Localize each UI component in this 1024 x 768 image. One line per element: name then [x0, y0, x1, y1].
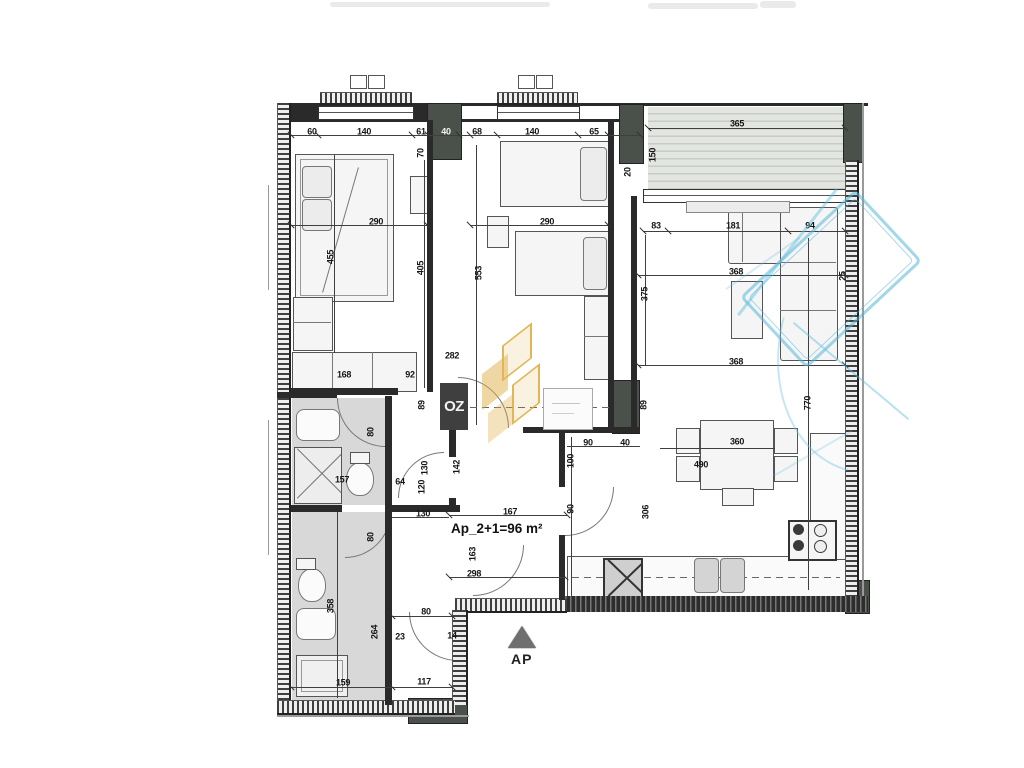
- dim-label: 368: [729, 268, 743, 277]
- dim-label: 65: [589, 128, 598, 137]
- dim-label: 40: [441, 128, 450, 137]
- wall: [449, 498, 456, 512]
- dim-label: 168: [337, 371, 351, 380]
- chair: [774, 456, 798, 482]
- wall-hatch: [320, 92, 412, 105]
- wall: [427, 120, 433, 392]
- dim-label: 770: [804, 396, 813, 410]
- wall: [412, 103, 428, 122]
- wall-hatched: [455, 598, 567, 613]
- dim-label: 90: [583, 439, 592, 448]
- wall-hatched-right: [845, 160, 859, 596]
- wall: [643, 103, 868, 106]
- scan-artifact: [760, 1, 796, 8]
- entrance-label: AP: [511, 651, 532, 667]
- pillow: [580, 147, 607, 201]
- dim-label: 306: [642, 505, 651, 519]
- dim-label: 157: [335, 476, 349, 485]
- dim-label: 140: [357, 128, 371, 137]
- wall-hatched-left: [277, 103, 291, 703]
- washbasin: [296, 409, 340, 441]
- dim-label: 142: [453, 460, 462, 474]
- dim-line: [337, 512, 338, 698]
- wall: [291, 505, 342, 512]
- dim-label: 290: [369, 218, 383, 227]
- dim-label: 80: [421, 608, 430, 617]
- wall-outer-line: [277, 715, 469, 717]
- dim-label: 490: [694, 461, 708, 470]
- dim-label: 181: [726, 222, 740, 231]
- dim-label: 360: [730, 438, 744, 447]
- dim-label: 130: [421, 461, 430, 475]
- dim-line: [291, 135, 640, 136]
- scan-artifact: [330, 2, 550, 7]
- dim-label: 117: [417, 678, 431, 687]
- sofa-chaise: [728, 207, 786, 264]
- extension-line: [268, 420, 269, 555]
- dim-line: [392, 687, 452, 688]
- wall-bottom-kitchen: [565, 596, 868, 612]
- dim-line: [660, 448, 775, 449]
- burner: [814, 540, 827, 553]
- dim-label: 92: [405, 371, 414, 380]
- area-label: Ap_2+1=96 m²: [451, 521, 543, 536]
- dim-label: 553: [475, 266, 484, 280]
- dim-label: 14: [447, 632, 456, 641]
- dim-label: 130: [416, 510, 430, 519]
- extension-line: [268, 185, 269, 290]
- dim-label: 68: [472, 128, 481, 137]
- dim-label: 90: [567, 504, 576, 513]
- wall-hatch: [497, 92, 578, 105]
- wardrobe-divider: [584, 336, 608, 337]
- dim-label: 120: [418, 480, 427, 494]
- dim-label: 89: [640, 400, 649, 409]
- watermark-logo: [480, 330, 544, 435]
- dim-label: 150: [649, 148, 658, 162]
- pillow: [302, 166, 332, 198]
- radiator: [518, 75, 535, 89]
- dim-label: 40: [620, 439, 629, 448]
- wardrobe-divider: [332, 352, 333, 390]
- pillar: [843, 103, 864, 163]
- dim-label: 80: [367, 427, 376, 436]
- dim-label: 159: [336, 679, 350, 688]
- window-sill: [686, 201, 790, 213]
- kitchen-sink: [720, 558, 745, 593]
- entrance-marker-icon: [508, 626, 536, 648]
- nightstand: [487, 216, 509, 248]
- dim-label: 264: [371, 625, 380, 639]
- dim-label: 298: [467, 570, 481, 579]
- dim-label: 405: [417, 261, 426, 275]
- chair: [774, 428, 798, 454]
- side-table: [731, 281, 763, 339]
- cabinet: [543, 388, 593, 430]
- wall: [608, 120, 614, 430]
- dim-label: 163: [469, 547, 478, 561]
- dim-label: 64: [395, 478, 404, 487]
- wardrobe-divider: [372, 352, 373, 390]
- dim-label: 290: [540, 218, 554, 227]
- dim-label: 282: [445, 352, 459, 361]
- dim-label: 167: [503, 508, 517, 517]
- dim-label: 23: [395, 633, 404, 642]
- scan-artifact: [648, 3, 758, 9]
- radiator: [350, 75, 367, 89]
- wall: [559, 427, 565, 487]
- wall-outer-line: [862, 103, 864, 612]
- watermark-text: OZ: [444, 398, 464, 415]
- wardrobe: [584, 296, 610, 380]
- wardrobe: [292, 352, 417, 392]
- wall: [559, 535, 565, 600]
- radiator: [536, 75, 553, 89]
- shaft-x-box: [603, 558, 643, 599]
- toilet-tank: [296, 558, 316, 570]
- cabinet-divider: [293, 322, 331, 323]
- dining-table: [700, 420, 774, 490]
- wall: [385, 396, 392, 705]
- burner: [793, 524, 804, 535]
- wall: [277, 392, 337, 398]
- window: [318, 106, 414, 120]
- dim-line: [648, 128, 845, 129]
- cabinet: [293, 297, 333, 351]
- dim-line: [291, 225, 427, 226]
- chair: [676, 428, 700, 454]
- table-extension: [722, 488, 754, 506]
- toilet-tank: [350, 452, 370, 464]
- dim-label: 375: [641, 287, 650, 301]
- dim-label: 20: [624, 167, 633, 176]
- dim-line: [808, 238, 809, 590]
- dim-label: 83: [651, 222, 660, 231]
- dim-label: 365: [730, 120, 744, 129]
- sofa-cushion-line: [742, 207, 743, 262]
- dim-label: 358: [327, 599, 336, 613]
- dim-label: 89: [418, 400, 427, 409]
- dim-line: [643, 231, 845, 232]
- toilet: [298, 568, 326, 602]
- kitchen-sink: [694, 558, 719, 593]
- dim-label: 100: [567, 454, 576, 468]
- burner: [814, 524, 827, 537]
- pillow: [583, 237, 607, 290]
- radiator: [368, 75, 385, 89]
- toilet: [346, 462, 374, 496]
- floor-plan-page: 6014061406814065703651502029045540516892…: [0, 0, 1024, 768]
- wall-hatched-bottom: [277, 700, 455, 715]
- burner: [793, 540, 804, 551]
- wall: [631, 196, 637, 433]
- balcony-deck: [648, 107, 845, 190]
- pillow: [302, 199, 332, 231]
- dim-label: 70: [417, 148, 426, 157]
- dim-label: 368: [729, 358, 743, 367]
- dim-label: 140: [525, 128, 539, 137]
- dim-label: 80: [367, 532, 376, 541]
- window: [497, 106, 580, 120]
- dim-line: [476, 145, 477, 425]
- dim-label: 455: [327, 250, 336, 264]
- dim-label: 94: [805, 222, 814, 231]
- watermark-box: OZ: [440, 383, 468, 430]
